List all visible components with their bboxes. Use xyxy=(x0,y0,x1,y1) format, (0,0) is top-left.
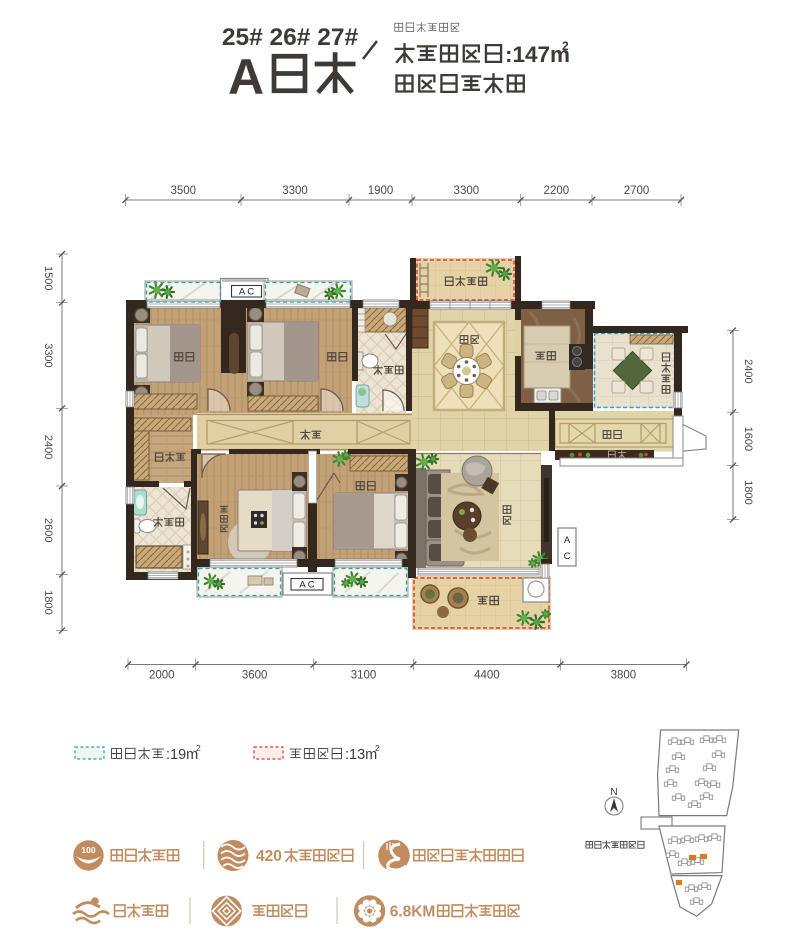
svg-text:1600: 1600 xyxy=(742,427,754,451)
svg-text:6.8KM: 6.8KM xyxy=(390,904,436,921)
svg-text:3300: 3300 xyxy=(282,185,308,197)
svg-text:25# 26# 27#: 25# 26# 27# xyxy=(222,24,359,51)
svg-text:3500: 3500 xyxy=(170,185,196,197)
svg-text::19m: :19m xyxy=(166,747,198,763)
svg-text:4400: 4400 xyxy=(474,670,500,682)
svg-text:1900: 1900 xyxy=(368,185,394,197)
svg-text:1500: 1500 xyxy=(42,266,54,290)
svg-text:A C: A C xyxy=(239,287,254,298)
svg-text:2: 2 xyxy=(196,743,201,753)
svg-text:A: A xyxy=(228,49,264,105)
svg-text:2600: 2600 xyxy=(42,518,54,542)
svg-text:3100: 3100 xyxy=(351,670,377,682)
svg-text:N: N xyxy=(610,787,617,798)
svg-text::13m: :13m xyxy=(345,747,377,763)
svg-text:2400: 2400 xyxy=(742,359,754,383)
svg-text:3800: 3800 xyxy=(611,670,637,682)
svg-text:2700: 2700 xyxy=(624,185,650,197)
svg-text:1800: 1800 xyxy=(742,480,754,504)
svg-text:3300: 3300 xyxy=(454,185,480,197)
svg-text:2000: 2000 xyxy=(149,670,175,682)
svg-text:420: 420 xyxy=(256,848,282,865)
svg-text:2: 2 xyxy=(375,743,380,753)
svg-text:A C: A C xyxy=(299,580,314,591)
svg-text:1800: 1800 xyxy=(42,590,54,614)
svg-text:C: C xyxy=(564,551,571,562)
svg-text::147m: :147m xyxy=(505,42,570,67)
svg-text:A: A xyxy=(564,535,571,546)
svg-text:3600: 3600 xyxy=(242,670,268,682)
svg-text:2: 2 xyxy=(562,39,569,53)
svg-text:2200: 2200 xyxy=(544,185,570,197)
svg-text:3300: 3300 xyxy=(42,343,54,367)
svg-text:100: 100 xyxy=(81,845,95,855)
svg-text:2400: 2400 xyxy=(42,435,54,459)
